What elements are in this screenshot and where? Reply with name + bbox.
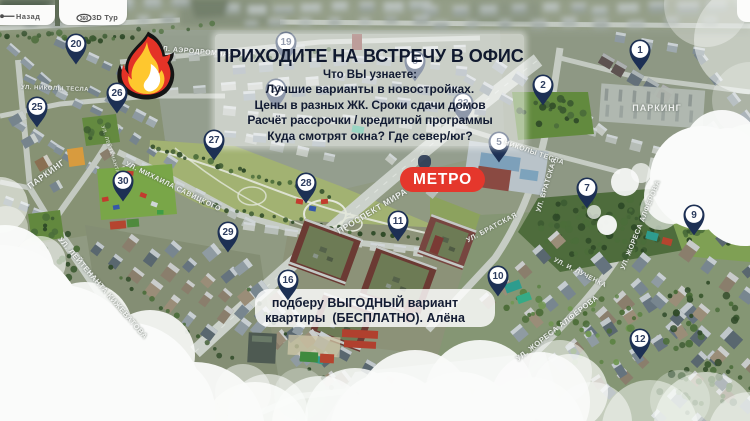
svg-text:1: 1 bbox=[637, 45, 643, 56]
svg-text:2: 2 bbox=[540, 80, 546, 91]
svg-text:20: 20 bbox=[70, 39, 82, 50]
svg-text:12: 12 bbox=[634, 334, 646, 345]
svg-text:10: 10 bbox=[492, 271, 504, 282]
svg-text:29: 29 bbox=[222, 227, 234, 238]
svg-text:7: 7 bbox=[584, 183, 590, 194]
svg-text:360: 360 bbox=[80, 16, 89, 22]
svg-text:28: 28 bbox=[300, 178, 312, 189]
svg-text:30: 30 bbox=[117, 176, 129, 187]
svg-text:25: 25 bbox=[31, 102, 43, 113]
svg-text:9: 9 bbox=[691, 210, 697, 221]
svg-text:26: 26 bbox=[111, 88, 123, 99]
svg-text:11: 11 bbox=[393, 216, 404, 227]
svg-text:27: 27 bbox=[208, 135, 220, 146]
svg-text:16: 16 bbox=[282, 275, 294, 286]
